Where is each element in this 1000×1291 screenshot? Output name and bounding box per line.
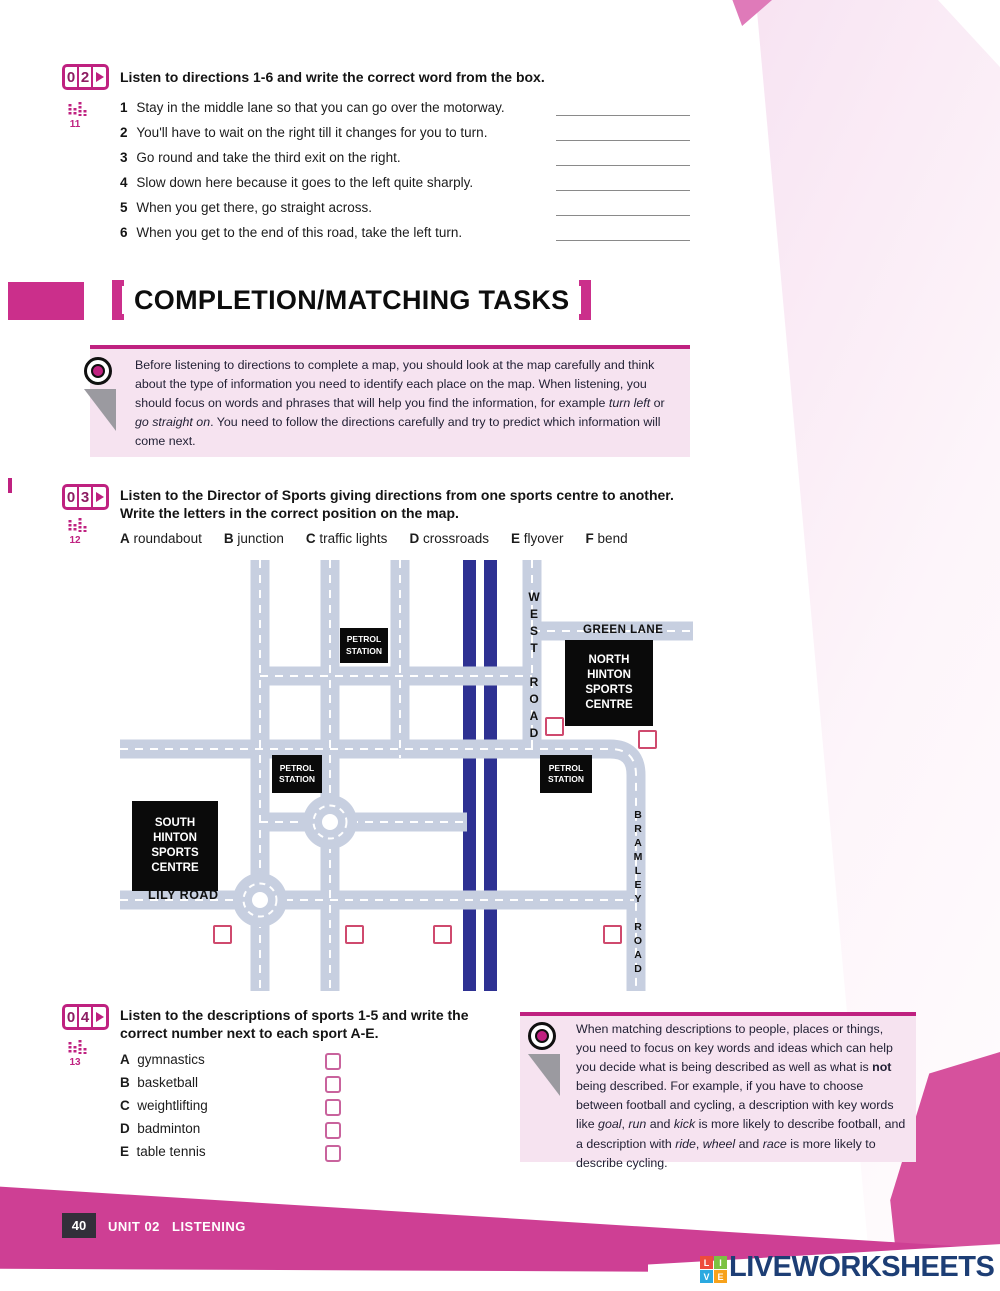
left-bracket-icon — [112, 280, 124, 320]
logo-tile-l: L — [700, 1256, 713, 1269]
sport-answer-checkbox[interactable] — [325, 1145, 341, 1162]
motorway-bar-right — [484, 560, 497, 991]
south-hinton-sports-centre: SOUTH HINTON SPORTS CENTRE — [132, 801, 218, 891]
answer-line-4[interactable] — [556, 189, 690, 191]
map-answer-box[interactable] — [638, 730, 657, 749]
road-label-west-road: WEST ROAD — [523, 580, 541, 752]
track-number: 12 — [64, 535, 86, 546]
liveworksheets-logo-icon[interactable]: L I V E — [700, 1256, 727, 1284]
play-arrow-icon — [93, 1007, 106, 1027]
map-answer-box[interactable] — [433, 925, 452, 944]
footer-unit-label: UNIT 02 — [108, 1219, 160, 1234]
exercise-03-badge: 0 3 — [62, 484, 109, 510]
liveworksheets-logo-text[interactable]: LIVEWORKSHEETS — [729, 1251, 994, 1284]
page-number: 40 — [62, 1213, 96, 1238]
option-b: B junction — [224, 531, 284, 546]
section-heading-title: COMPLETION/MATCHING TASKS — [134, 285, 569, 316]
answer-line-3[interactable] — [556, 164, 690, 166]
list-item: 5 When you get there, go straight across… — [120, 199, 372, 217]
play-arrow-icon — [93, 67, 106, 87]
option-c: C traffic lights — [306, 531, 388, 546]
badge-digit: 4 — [79, 1007, 93, 1027]
answer-line-2[interactable] — [556, 139, 690, 141]
list-item: 2 You'll have to wait on the right till … — [120, 124, 487, 142]
motorway-bar-left — [463, 560, 476, 991]
play-arrow-icon — [93, 487, 106, 507]
map-answer-box[interactable] — [345, 925, 364, 944]
logo-tile-v: V — [700, 1270, 713, 1283]
sport-answer-checkbox[interactable] — [325, 1076, 341, 1093]
option-e: E flyover — [511, 531, 564, 546]
logo-tile-e: E — [714, 1270, 727, 1283]
exercise-03-instruction-line1: Listen to the Director of Sports giving … — [120, 486, 700, 504]
heading-left-block — [8, 282, 84, 320]
footer-section-label: LISTENING — [172, 1219, 246, 1234]
petrol-station: PETROL STATION — [272, 755, 322, 793]
north-hinton-sports-centre: NORTH HINTON SPORTS CENTRE — [565, 640, 653, 726]
right-bracket-icon — [579, 280, 591, 320]
tip-target-icon — [528, 1022, 556, 1050]
option-d: D crossroads — [409, 531, 489, 546]
tip-target-icon — [84, 357, 112, 385]
map-answer-box[interactable] — [213, 925, 232, 944]
logo-tile-i: I — [714, 1256, 727, 1269]
section-heading: COMPLETION/MATCHING TASKS — [112, 280, 591, 320]
petrol-station: PETROL STATION — [340, 628, 388, 663]
answer-line-6[interactable] — [556, 239, 690, 241]
answer-line-1[interactable] — [556, 114, 690, 116]
petrol-station: PETROL STATION — [540, 755, 592, 793]
exercise-04-instruction-line1: Listen to the descriptions of sports 1-5… — [120, 1006, 500, 1024]
exercise-03-instruction-line2: Write the letters in the correct positio… — [120, 504, 700, 522]
sport-item-e: E table tennis — [120, 1144, 206, 1159]
sport-item-a: A gymnastics — [120, 1052, 205, 1067]
tip-2-text: When matching descriptions to people, pl… — [576, 1020, 906, 1173]
sport-answer-checkbox[interactable] — [325, 1099, 341, 1116]
track-number: 13 — [64, 1057, 86, 1068]
list-item: 3 Go round and take the third exit on th… — [120, 149, 401, 167]
badge-digit: 0 — [65, 1007, 79, 1027]
answer-line-5[interactable] — [556, 214, 690, 216]
list-item: 4 Slow down here because it goes to the … — [120, 174, 473, 192]
option-f: F bend — [586, 531, 628, 546]
list-item: 1 Stay in the middle lane so that you ca… — [120, 99, 505, 117]
option-a: A roundabout — [120, 531, 202, 546]
sport-item-d: D badminton — [120, 1121, 200, 1136]
sport-answer-checkbox[interactable] — [325, 1122, 341, 1139]
exercise-04-badge: 0 4 — [62, 1004, 109, 1030]
roundabout-upper — [303, 795, 357, 849]
exercise-02-instruction: Listen to directions 1-6 and write the c… — [120, 68, 680, 86]
left-edge-mark — [8, 478, 12, 493]
badge-digit: 2 — [79, 67, 93, 87]
badge-digit: 3 — [79, 487, 93, 507]
exercise-02-badge: 0 2 — [62, 64, 109, 90]
exercise-04-instruction-line2: correct number next to each sport A-E. — [120, 1024, 500, 1042]
sport-item-b: B basketball — [120, 1075, 198, 1090]
map-answer-box[interactable] — [603, 925, 622, 944]
exercise-03-options: A roundabout B junction C traffic lights… — [120, 531, 628, 546]
badge-digit: 0 — [65, 487, 79, 507]
list-item: 6 When you get to the end of this road, … — [120, 224, 462, 242]
track-number: 11 — [64, 119, 86, 130]
badge-digit: 0 — [65, 67, 79, 87]
roundabout-lower — [233, 873, 287, 927]
sport-answer-checkbox[interactable] — [325, 1053, 341, 1070]
sport-item-c: C weightlifting — [120, 1098, 208, 1113]
road-label-bramley-road: BRAMLEY ROAD — [628, 796, 644, 990]
tip-1-text: Before listening to directions to comple… — [135, 356, 680, 451]
road-label-green-lane: GREEN LANE — [583, 624, 663, 636]
map: GREEN LANE WEST ROAD BRAMLEY ROAD LILY R… — [115, 558, 700, 993]
worksheet-page: 0 2 Listen to directions 1-6 and write t… — [0, 0, 1000, 1291]
map-answer-box[interactable] — [545, 717, 564, 736]
